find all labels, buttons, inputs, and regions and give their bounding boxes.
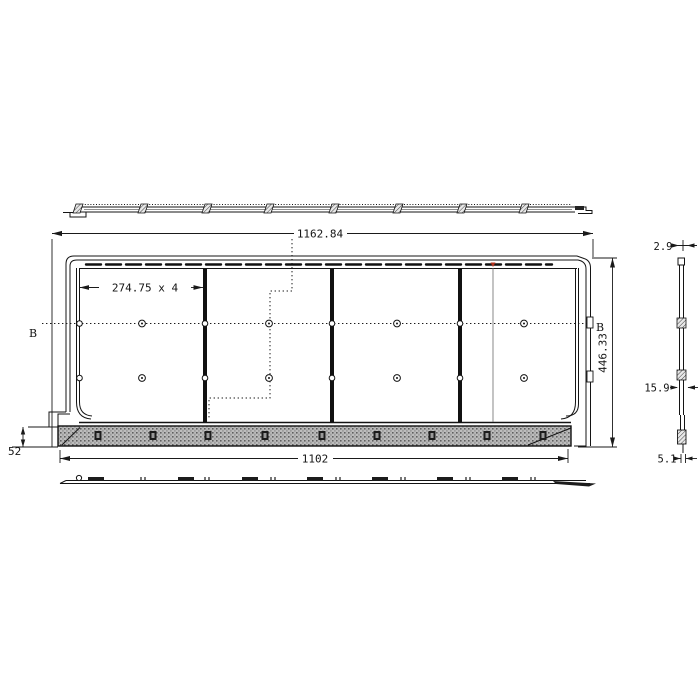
mounting-holes-lower-row [77,375,528,382]
panel-thickness-dimension: 15.9 [644,383,698,395]
flange-width-value: 1102 [302,453,329,466]
bottom-lip-thickness-value: 5.1 [658,454,677,466]
panel-pitch-value: 274.75 x 4 [112,282,179,295]
mounting-hole [329,375,335,381]
top-profile-view [63,204,592,217]
flange-height-dimension: 52 [8,427,58,458]
side-section-view [677,258,686,453]
arrowhead [672,243,680,247]
mounting-hole [202,375,208,381]
mounting-hole [457,321,463,327]
arrowhead [21,427,25,435]
flange-width-dimension: 1102 [60,449,568,466]
top-lip-thickness-dimension: 2.9 [654,240,697,253]
section-label-right: B [596,321,604,334]
bottom-flange [58,426,571,446]
side-clip-mark [677,318,686,328]
bottom-flange-hatch [58,426,571,446]
panel-inner-right-edge [561,268,576,419]
arrowhead [610,438,615,448]
panel-pitch-dimension: 274.75 x 4 [80,282,204,295]
side-top-cap [678,258,685,265]
mounting-hole [202,321,208,327]
panel-drawing: 1162.84 [0,0,700,700]
side-clip-mark [677,370,686,380]
panel-divider [330,268,334,423]
arrowhead [671,385,679,389]
side-foot [678,430,687,444]
panel-divider [458,268,462,423]
section-label-left: B [29,327,37,340]
arrowhead [686,457,693,461]
edge-notch [587,317,593,328]
tab [372,477,388,481]
tab [437,477,453,481]
end-hole [76,475,81,480]
mounting-hole [457,375,463,381]
arrowhead [558,456,568,461]
tab [178,477,194,481]
bottom-profile-view [60,475,596,486]
panel-thickness-value: 15.9 [644,383,669,395]
bottom-profile-right-taper [553,481,596,487]
overall-width-value: 1162.84 [297,228,344,241]
mounting-hole [77,375,83,381]
arrowhead [688,385,696,389]
bottom-lip-thickness-dimension: 5.1 [658,454,697,466]
tab [242,477,258,481]
overall-height-value: 446.33 [597,333,610,373]
tab [88,477,104,481]
panel-divider [203,268,207,423]
tab [307,477,323,481]
arrowhead [194,285,204,290]
mounting-hole [77,321,83,327]
arrowhead [52,231,62,236]
tab [502,477,518,481]
overall-height-dimension: 446.33 [578,258,617,447]
arrowhead [583,231,593,236]
detail-boundary-leader [209,239,292,419]
arrowhead [60,456,70,461]
top-lip-thickness-value: 2.9 [654,241,673,253]
mounting-hole [329,321,335,327]
arrowhead [687,243,695,247]
panel-inner-left-edge [77,268,92,419]
cad-drawing-sheet: 1162.84 [0,0,700,700]
arrowhead [21,440,25,448]
flange-height-value: 52 [8,445,21,458]
edge-notch [587,371,593,382]
arrowhead [610,258,615,268]
arrowhead [80,285,90,290]
